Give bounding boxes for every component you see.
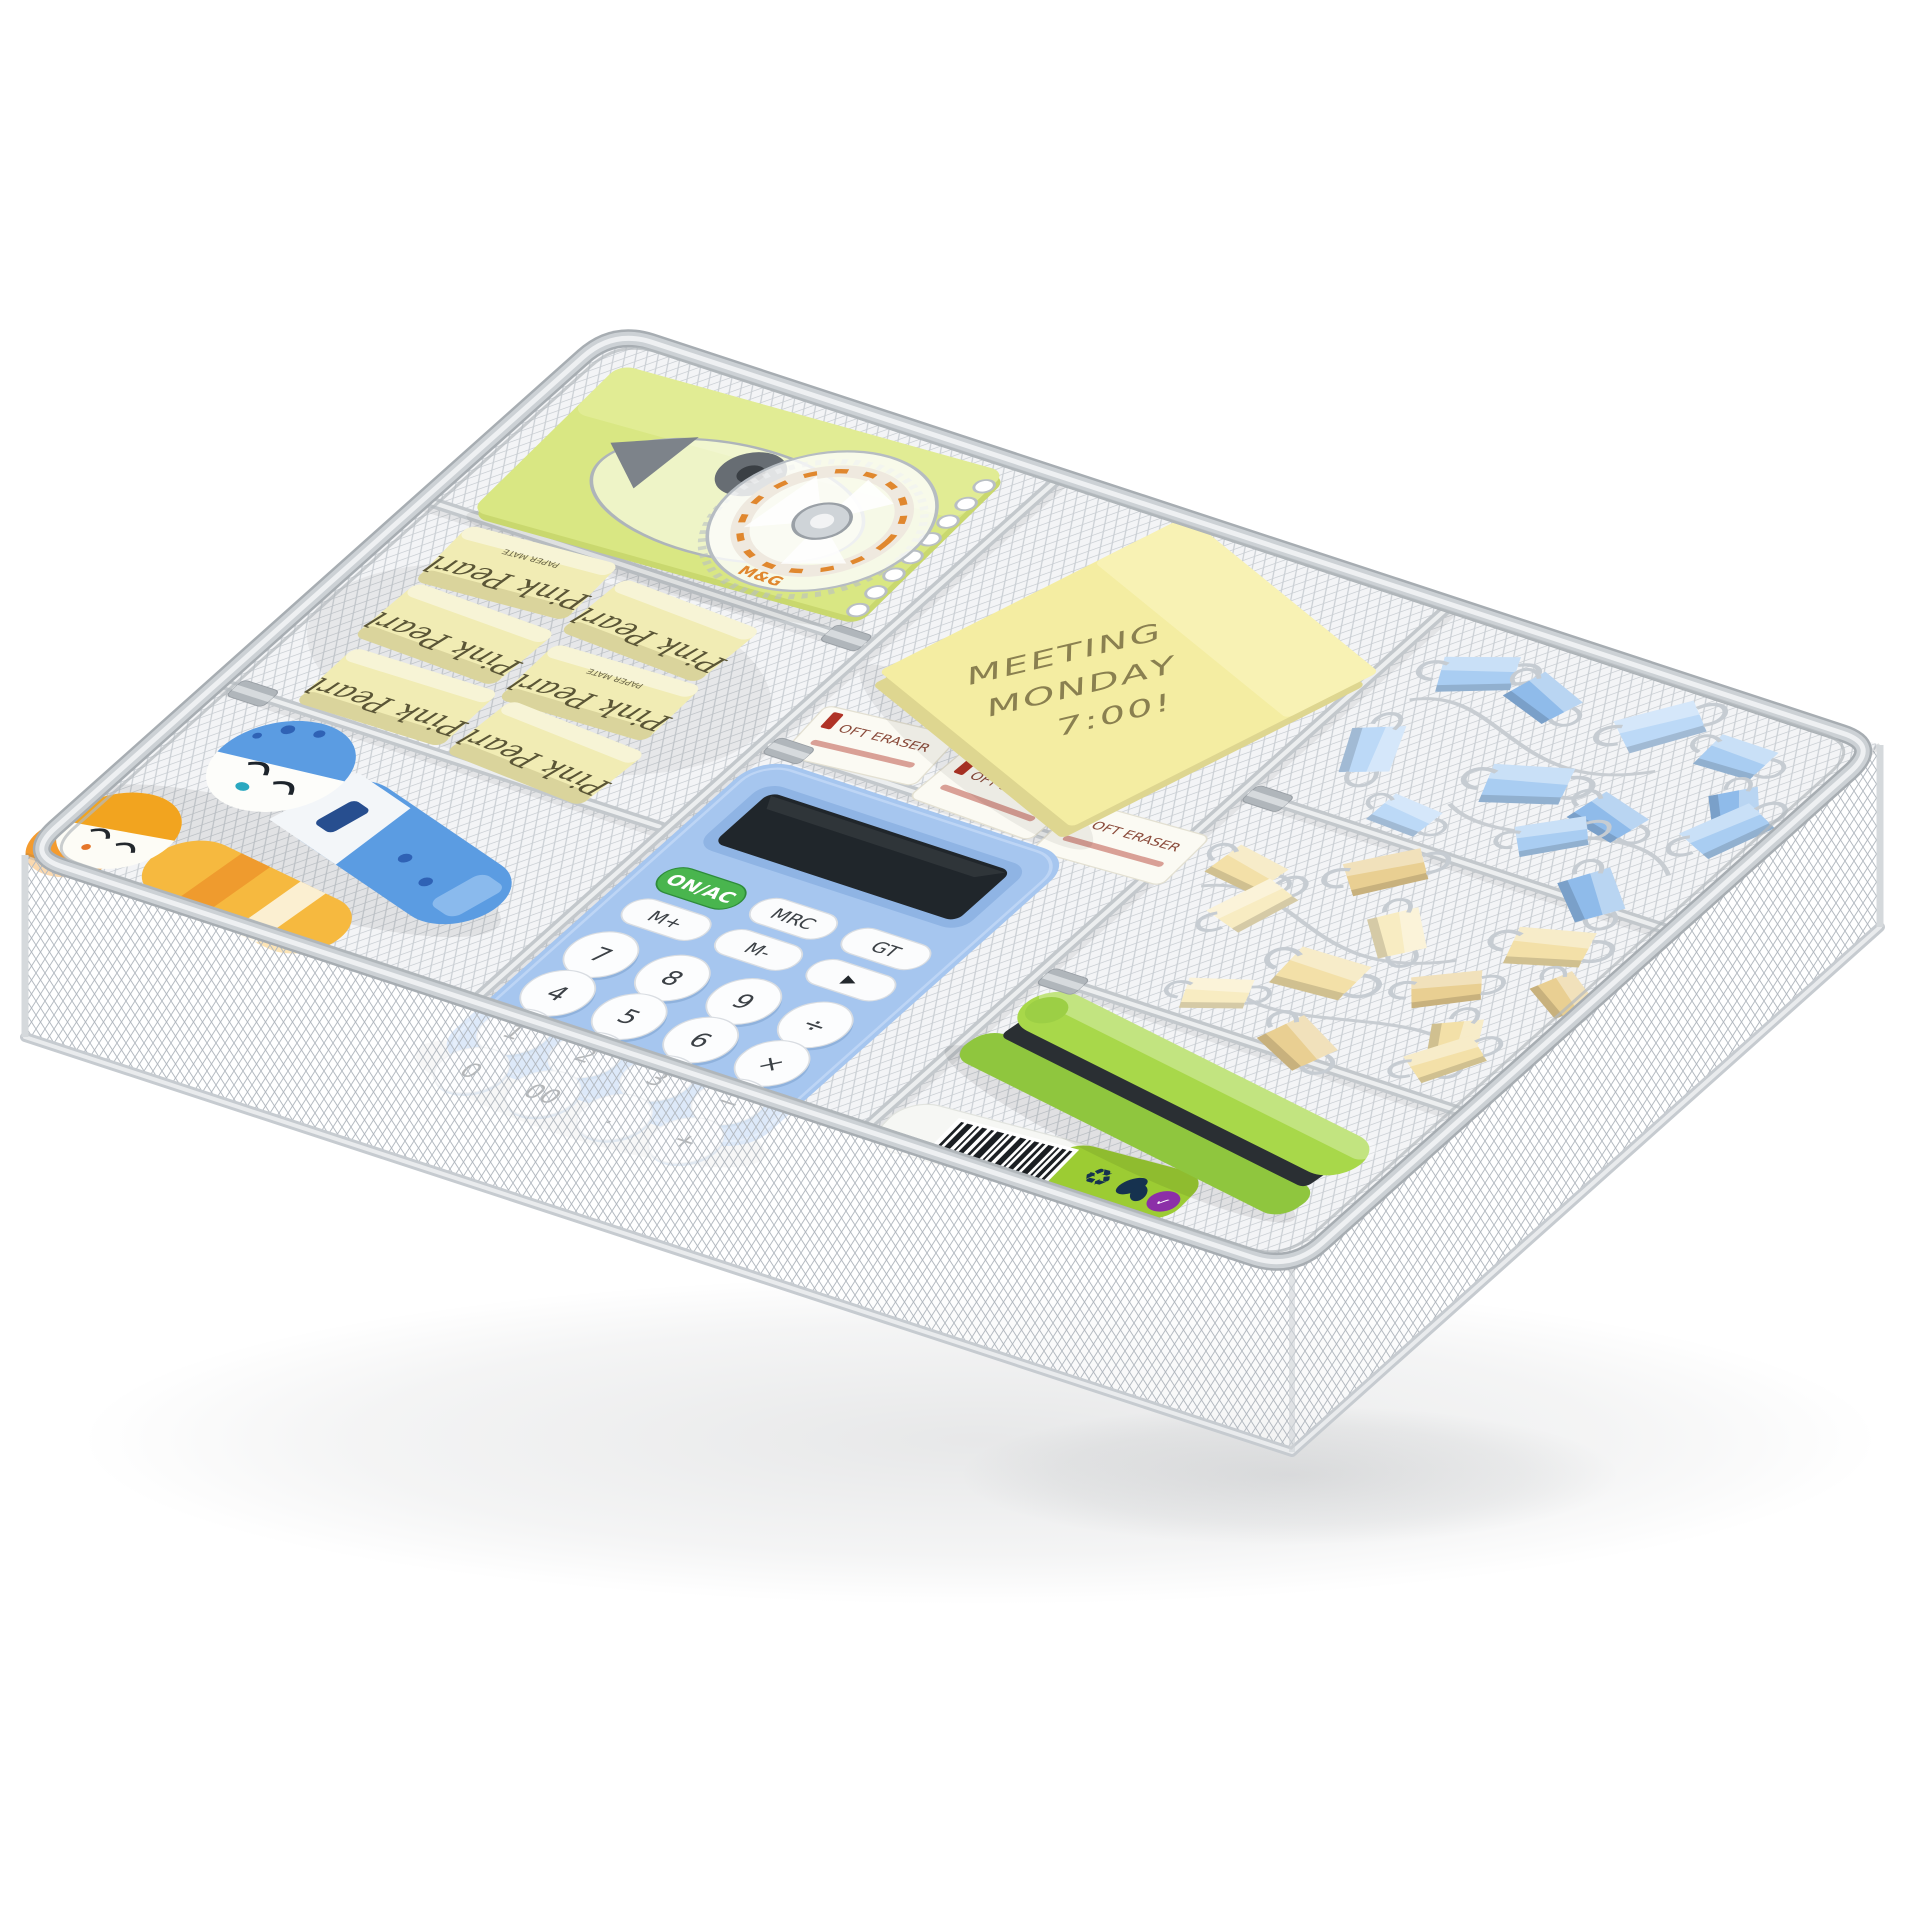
organizer-tray-image: M&G Pink Pearl PAPER MATE Pink Pearl Pin… bbox=[0, 0, 1921, 1921]
product-photo: M&G Pink Pearl PAPER MATE Pink Pearl Pin… bbox=[0, 0, 1921, 1921]
